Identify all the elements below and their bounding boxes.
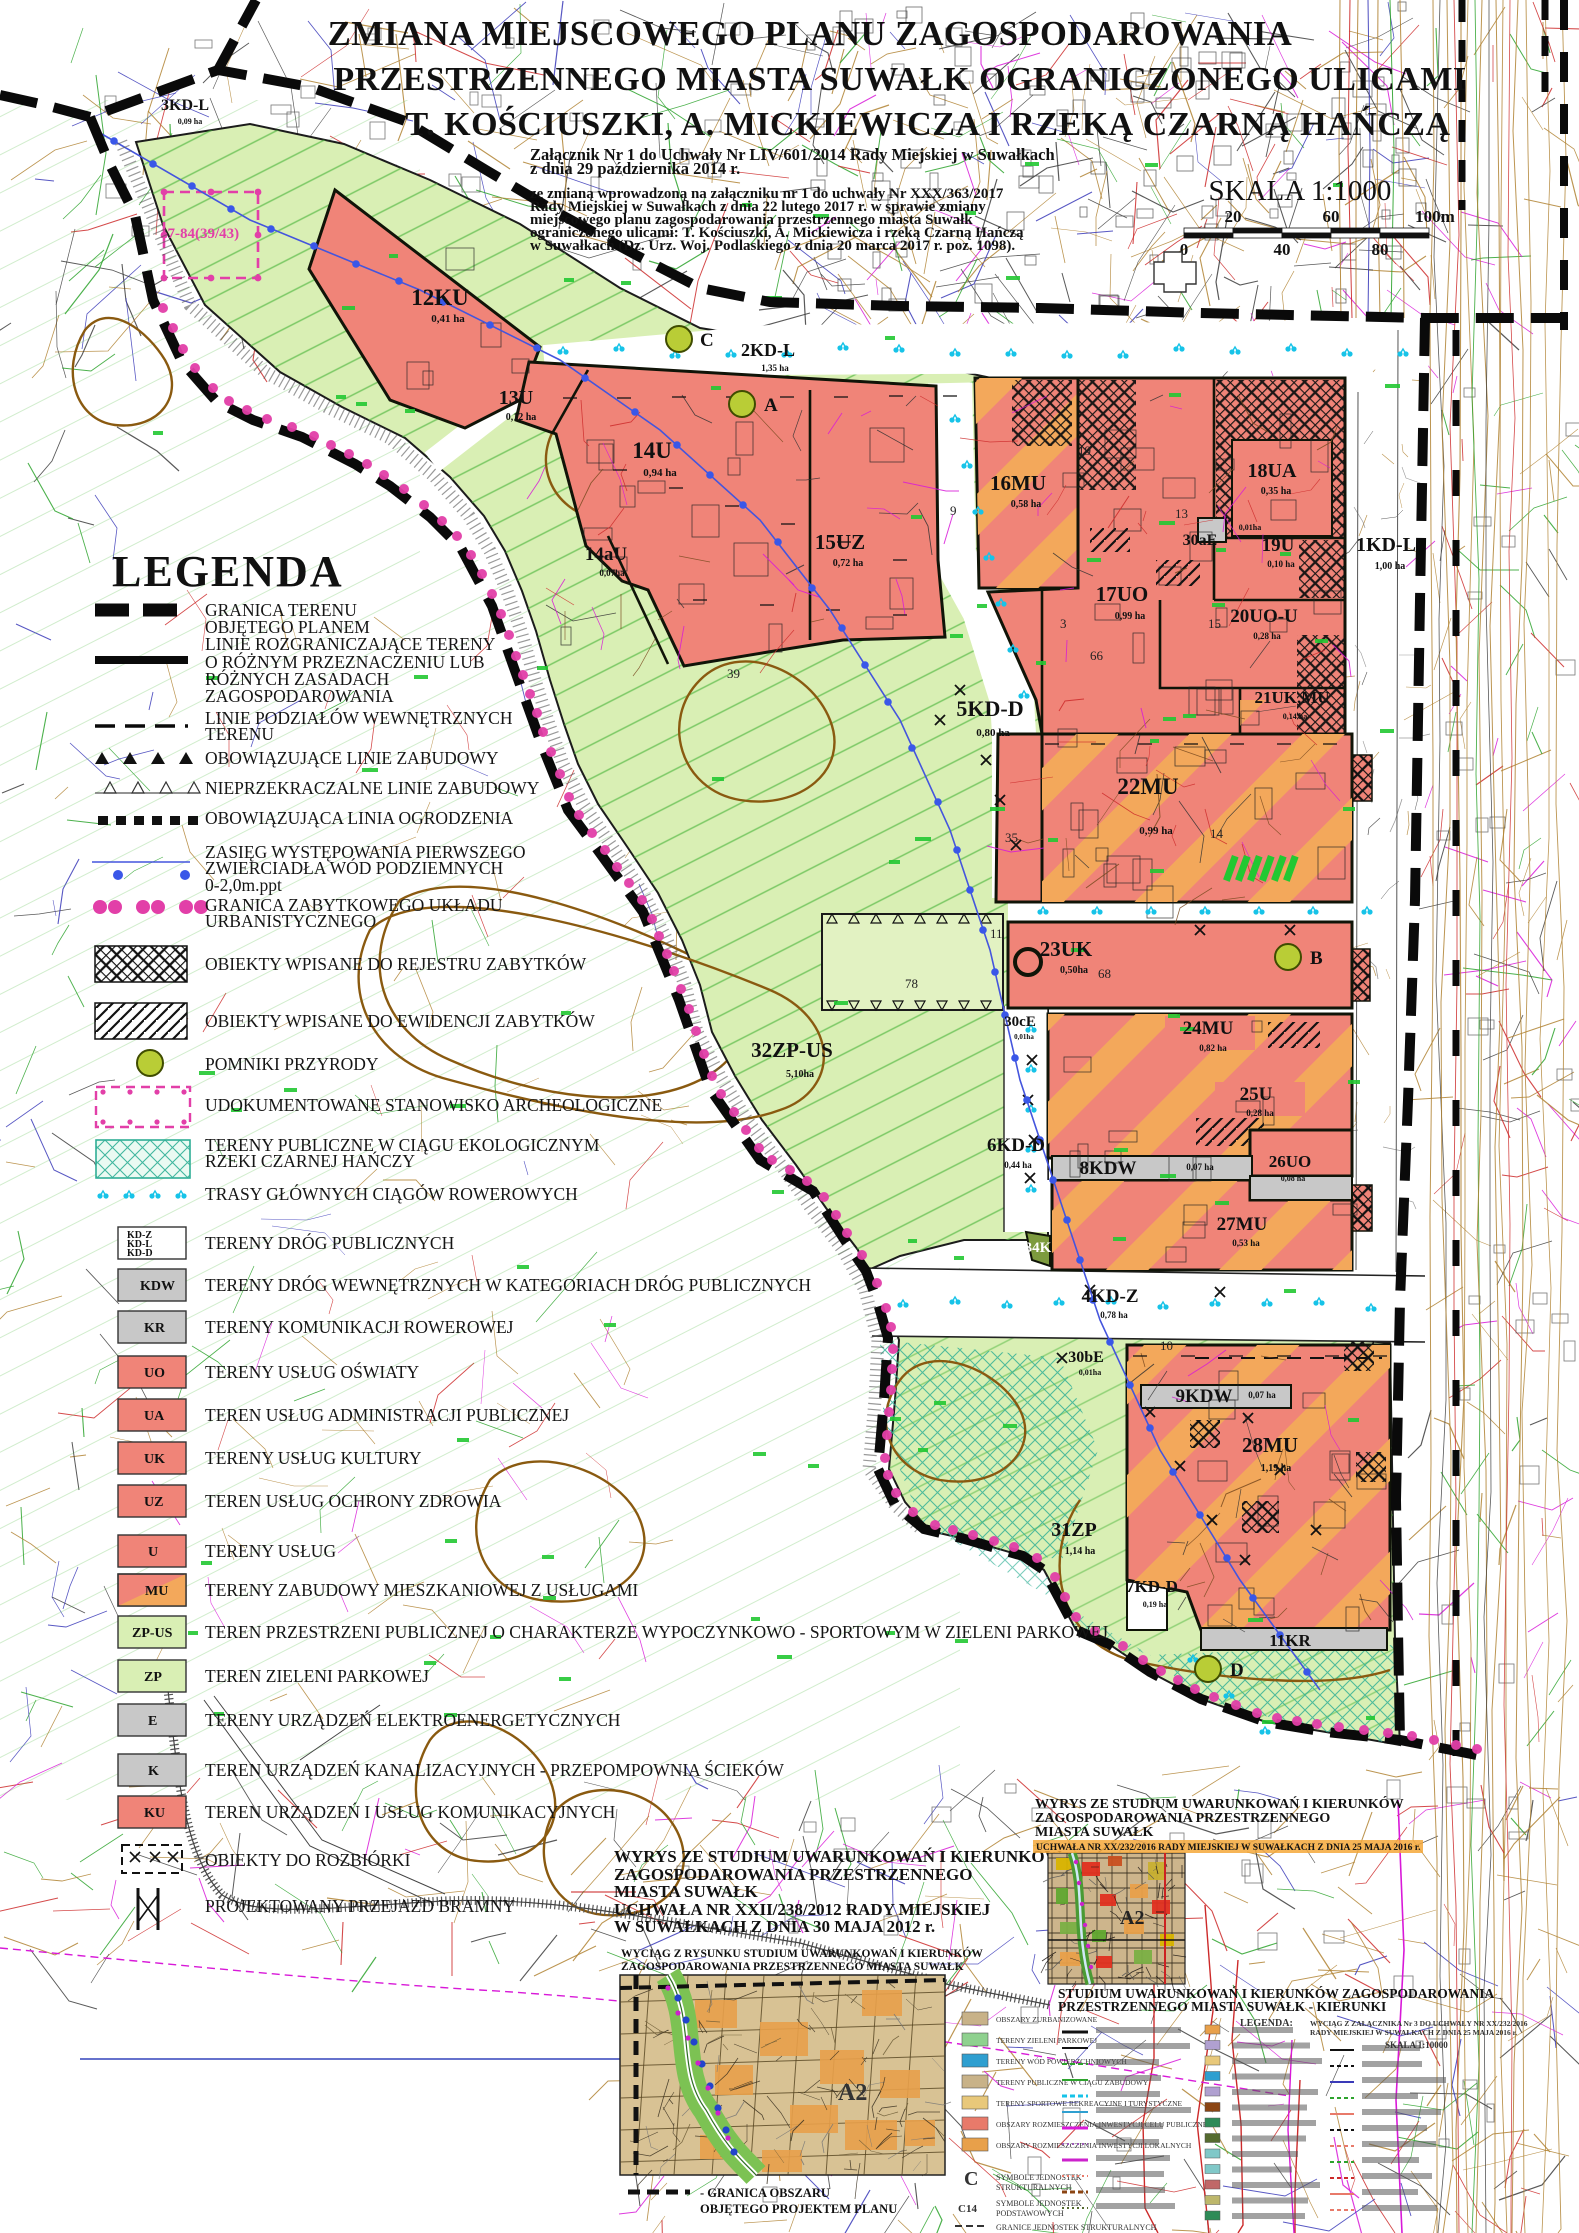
svg-text:40: 40 — [1274, 240, 1291, 259]
svg-text:13U: 13U — [499, 387, 533, 409]
svg-text:STRUKTURALNYCH: STRUKTURALNYCH — [996, 2183, 1072, 2192]
svg-text:A2: A2 — [1120, 1907, 1144, 1929]
svg-text:SKALA 1:1000: SKALA 1:1000 — [1209, 175, 1392, 207]
svg-text:UDOKUMENTOWANE STANOWISKO ARCH: UDOKUMENTOWANE STANOWISKO ARCHEOLOGICZNE — [205, 1095, 662, 1115]
svg-text:15: 15 — [1208, 616, 1221, 631]
svg-text:TERENY SPORTOWE REKREACYJNE I: TERENY SPORTOWE REKREACYJNE I TURYSTYCZN… — [996, 2099, 1183, 2108]
svg-text:0,09 ha: 0,09 ha — [178, 117, 202, 126]
svg-text:SKALA 1:10000: SKALA 1:10000 — [1385, 2040, 1448, 2050]
svg-text:KD-D: KD-D — [127, 1248, 153, 1259]
svg-text:1,19 ha: 1,19 ha — [1261, 1463, 1292, 1474]
svg-text:OBOWIĄZUJĄCA LINIA OGRODZENIA: OBOWIĄZUJĄCA LINIA OGRODZENIA — [205, 808, 514, 828]
svg-text:15UZ: 15UZ — [815, 530, 865, 554]
svg-text:0,41 ha: 0,41 ha — [431, 313, 465, 325]
svg-text:LEGENDA: LEGENDA — [112, 547, 344, 596]
svg-text:TEREN PRZESTRZENI PUBLICZNEJ O: TEREN PRZESTRZENI PUBLICZNEJ O CHARAKTER… — [205, 1622, 1108, 1642]
svg-text:TEREN USŁUG ADMINISTRACJI PUBL: TEREN USŁUG ADMINISTRACJI PUBLICZNEJ — [205, 1405, 569, 1425]
svg-text:1,00 ha: 1,00 ha — [1375, 561, 1406, 572]
svg-text:TEREN USŁUG OCHRONY ZDROWIA: TEREN USŁUG OCHRONY ZDROWIA — [205, 1491, 502, 1511]
svg-text:0,82 ha: 0,82 ha — [1199, 1043, 1227, 1053]
svg-text:11KR: 11KR — [1269, 1631, 1311, 1650]
svg-text:31ZP: 31ZP — [1051, 1519, 1097, 1541]
svg-text:19U: 19U — [1262, 535, 1295, 556]
svg-text:KR: KR — [144, 1321, 166, 1336]
svg-text:0,07 ha: 0,07 ha — [1186, 1162, 1214, 1172]
svg-text:ZMIANA MIEJSCOWEGO PLANU ZAGOS: ZMIANA MIEJSCOWEGO PLANU ZAGOSPODAROWANI… — [328, 15, 1293, 53]
svg-text:13: 13 — [1175, 506, 1188, 521]
svg-text:0,08 ha: 0,08 ha — [1281, 1174, 1305, 1183]
svg-text:POMNIKI PRZYRODY: POMNIKI PRZYRODY — [205, 1054, 379, 1074]
svg-text:GRANICE JEDNOSTEK STRUKTURALNY: GRANICE JEDNOSTEK STRUKTURALNYCH — [996, 2223, 1157, 2232]
svg-text:9: 9 — [950, 503, 957, 518]
svg-text:PROJEKTOWANY PRZEJAZD BRAMNY: PROJEKTOWANY PRZEJAZD BRAMNY — [205, 1896, 516, 1916]
svg-text:30aE: 30aE — [1183, 532, 1218, 549]
svg-text:0,72 ha: 0,72 ha — [833, 558, 864, 569]
svg-text:T. KOŚCIUSZKI, A. MICKIEWICZA: T. KOŚCIUSZKI, A. MICKIEWICZA I RZEKĄ CZ… — [405, 105, 1450, 143]
svg-text:26UO: 26UO — [1269, 1152, 1312, 1171]
svg-text:0,07 ha: 0,07 ha — [1248, 1390, 1276, 1400]
svg-text:1,35 ha: 1,35 ha — [761, 363, 789, 373]
svg-text:TERENY DRÓG WEWNĘTRZNYCH W KAT: TERENY DRÓG WEWNĘTRZNYCH W KATEGORIACH D… — [205, 1275, 811, 1295]
svg-text:TERENY URZĄDZEŃ ELEKTROENERGET: TERENY URZĄDZEŃ ELEKTROENERGETYCZNYCH — [205, 1710, 621, 1730]
svg-text:60: 60 — [1323, 207, 1340, 226]
svg-text:WYRYS ZE STUDIUM UWARUNKOWAŃ I: WYRYS ZE STUDIUM UWARUNKOWAŃ I KIERUNKÓW — [1035, 1795, 1404, 1812]
svg-text:6KD-D: 6KD-D — [987, 1135, 1045, 1156]
svg-text:PRZESTRZENNEGO MIASTA SUWAŁK -: PRZESTRZENNEGO MIASTA SUWAŁK - KIERUNKI — [1058, 1999, 1386, 2014]
svg-text:68: 68 — [1098, 966, 1111, 981]
svg-text:35: 35 — [1005, 830, 1018, 845]
svg-text:0,10 ha: 0,10 ha — [1267, 559, 1295, 569]
svg-text:ZP: ZP — [144, 1670, 162, 1685]
svg-text:0,50ha: 0,50ha — [1060, 965, 1088, 976]
svg-text:5,10ha: 5,10ha — [786, 1069, 814, 1080]
svg-text:RZEKI CZARNEJ HAŃCZY: RZEKI CZARNEJ HAŃCZY — [205, 1151, 415, 1171]
svg-text:C: C — [964, 2168, 978, 2190]
svg-text:12KU: 12KU — [411, 285, 469, 310]
svg-text:80: 80 — [1372, 240, 1389, 259]
svg-text:W SUWAŁKACH Z DNIA 30 MAJA 201: W SUWAŁKACH Z DNIA 30 MAJA 2012 r. — [614, 1917, 935, 1936]
svg-text:66: 66 — [1090, 648, 1104, 663]
svg-text:3: 3 — [1060, 616, 1067, 631]
svg-text:39: 39 — [727, 666, 740, 681]
svg-text:1,14 ha: 1,14 ha — [1065, 1546, 1096, 1557]
svg-text:B: B — [1310, 948, 1323, 969]
svg-text:25U: 25U — [1240, 1084, 1273, 1105]
svg-text:14: 14 — [1210, 826, 1224, 841]
svg-text:0,99 ha: 0,99 ha — [1139, 825, 1173, 837]
svg-text:20: 20 — [1225, 207, 1242, 226]
svg-text:KU: KU — [144, 1806, 165, 1821]
svg-text:PODSTAWOWYCH: PODSTAWOWYCH — [996, 2209, 1064, 2218]
svg-text:TERENY USŁUG: TERENY USŁUG — [205, 1541, 336, 1561]
svg-text:TERENY USŁUG OŚWIATY: TERENY USŁUG OŚWIATY — [205, 1362, 420, 1382]
svg-text:A2: A2 — [838, 2080, 867, 2106]
svg-text:U: U — [148, 1545, 158, 1560]
svg-text:8KDW: 8KDW — [1080, 1158, 1137, 1179]
svg-text:RADY MIEJSKIEJ W SUWAŁKACH Z D: RADY MIEJSKIEJ W SUWAŁKACH Z DNIA 25 MAJ… — [1310, 2028, 1517, 2037]
svg-text:19: 19 — [1078, 443, 1091, 458]
svg-text:14aU: 14aU — [585, 544, 628, 565]
svg-text:20UO-U: 20UO-U — [1230, 606, 1298, 627]
svg-text:2KD-L: 2KD-L — [741, 340, 795, 360]
svg-text:SYMBOLE JEDNOSTEK: SYMBOLE JEDNOSTEK — [996, 2199, 1082, 2208]
svg-text:TEREN ZIELENI PARKOWEJ: TEREN ZIELENI PARKOWEJ — [205, 1666, 429, 1686]
svg-text:OBIEKTY WPISANE DO REJESTRU ZA: OBIEKTY WPISANE DO REJESTRU ZABYTKÓW — [205, 954, 587, 974]
svg-text:UCHWAŁA NR XX/232/2016 RADY MI: UCHWAŁA NR XX/232/2016 RADY MIEJSKIEJ W … — [1036, 1843, 1421, 1853]
svg-text:MIASTA SUWAŁK: MIASTA SUWAŁK — [1035, 1825, 1153, 1840]
svg-text:30cE: 30cE — [1004, 1014, 1036, 1030]
svg-text:0,14 ha: 0,14 ha — [1283, 712, 1307, 721]
svg-text:4KD-Z: 4KD-Z — [1082, 1286, 1139, 1307]
svg-text:0,07ha: 0,07ha — [599, 568, 625, 578]
svg-text:TERENY ZIELENI PARKOWEJ: TERENY ZIELENI PARKOWEJ — [996, 2036, 1097, 2045]
svg-text:SYMBOLE JEDNOSTEK: SYMBOLE JEDNOSTEK — [996, 2173, 1082, 2182]
svg-text:KDW: KDW — [140, 1279, 175, 1294]
svg-text:OBSZARY ROZMIESZCZENIA INWESTY: OBSZARY ROZMIESZCZENIA INWESTYCJI LOKALN… — [996, 2141, 1192, 2150]
svg-text:w Suwałkach (Dz. Urz. Woj. Pod: w Suwałkach (Dz. Urz. Woj. Podlaskiego z… — [530, 238, 1015, 254]
svg-text:UO: UO — [144, 1366, 165, 1381]
svg-text:0,99 ha: 0,99 ha — [1115, 611, 1146, 622]
svg-text:UA: UA — [144, 1409, 165, 1424]
svg-text:23UK: 23UK — [1040, 937, 1093, 961]
svg-text:K: K — [148, 1764, 159, 1779]
svg-text:7KD-D: 7KD-D — [1126, 1577, 1178, 1596]
svg-text:0-2,0m.ppt: 0-2,0m.ppt — [205, 875, 282, 895]
svg-text:E: E — [148, 1714, 157, 1729]
svg-text:0,44 ha: 0,44 ha — [1004, 1160, 1032, 1170]
svg-text:0,28 ha: 0,28 ha — [1246, 1108, 1274, 1118]
svg-text:0,94 ha: 0,94 ha — [643, 467, 677, 479]
svg-text:0,01ha: 0,01ha — [1239, 523, 1261, 532]
svg-text:27MU: 27MU — [1217, 1214, 1268, 1235]
svg-text:17-84(39/43): 17-84(39/43) — [160, 226, 239, 242]
svg-text:LEGENDA:: LEGENDA: — [1240, 2018, 1293, 2029]
svg-text:D: D — [1230, 1660, 1244, 1681]
svg-text:MIASTA SUWAŁK: MIASTA SUWAŁK — [614, 1882, 759, 1901]
svg-text:78: 78 — [905, 976, 918, 991]
svg-text:C14: C14 — [958, 2203, 977, 2215]
svg-text:WYCIĄG Z ZAŁĄCZNIKA Nr 3 DO UC: WYCIĄG Z ZAŁĄCZNIKA Nr 3 DO UCHWAŁY NR X… — [1310, 2019, 1528, 2028]
svg-text:WYRYS ZE STUDIUM UWARUNKOWAŃ I: WYRYS ZE STUDIUM UWARUNKOWAŃ I KIERUNKÓW — [614, 1847, 1062, 1866]
svg-text:OBSZARY ZURBANIZOWANE: OBSZARY ZURBANIZOWANE — [996, 2015, 1098, 2024]
svg-text:TERENY KOMUNIKACJI ROWEROWEJ: TERENY KOMUNIKACJI ROWEROWEJ — [205, 1317, 514, 1337]
svg-text:0,01ha: 0,01ha — [1014, 1033, 1034, 1041]
svg-text:OBJĘTEGO PROJEKTEM PLANU: OBJĘTEGO PROJEKTEM PLANU — [700, 2202, 897, 2216]
svg-text:OBIEKTY DO ROZBIÓRKI: OBIEKTY DO ROZBIÓRKI — [205, 1850, 411, 1870]
svg-text:ZAGOSPODAROWANIA: ZAGOSPODAROWANIA — [205, 686, 394, 706]
svg-text:3KD-L: 3KD-L — [161, 97, 209, 114]
svg-text:ZAGOSPODAROWANIA PRZESTRZENNEG: ZAGOSPODAROWANIA PRZESTRZENNEGO — [1035, 1811, 1330, 1826]
svg-text:TEREN URZĄDZEŃ KANALIZACYJNYCH: TEREN URZĄDZEŃ KANALIZACYJNYCH - PRZEPOM… — [205, 1760, 784, 1780]
svg-text:14U: 14U — [632, 438, 672, 463]
svg-text:1KD-L: 1KD-L — [1356, 534, 1416, 556]
svg-text:TERENY ZABUDOWY MIESZKANIOWEJ: TERENY ZABUDOWY MIESZKANIOWEJ Z USŁUGAMI — [205, 1580, 638, 1600]
svg-text:0,58 ha: 0,58 ha — [1011, 499, 1042, 510]
svg-text:OBIEKTY WPISANE DO EWIDENCJI Z: OBIEKTY WPISANE DO EWIDENCJI ZABYTKÓW — [205, 1011, 595, 1031]
svg-text:16MU: 16MU — [990, 471, 1046, 495]
svg-text:0,19 ha: 0,19 ha — [1143, 1600, 1167, 1609]
svg-text:0,12 ha: 0,12 ha — [506, 412, 537, 423]
svg-text:TERENY DRÓG PUBLICZNYCH: TERENY DRÓG PUBLICZNYCH — [205, 1233, 455, 1253]
svg-text:32ZP-US: 32ZP-US — [751, 1038, 833, 1062]
svg-text:PRZESTRZENNEGO MIASTA SUWAŁK O: PRZESTRZENNEGO MIASTA SUWAŁK OGRANICZONE… — [333, 61, 1466, 98]
svg-text:C: C — [700, 330, 714, 351]
svg-text:9KDW: 9KDW — [1176, 1386, 1233, 1407]
svg-text:URBANISTYCZNEGO: URBANISTYCZNEGO — [205, 911, 376, 931]
svg-text:28MU: 28MU — [1242, 1433, 1298, 1457]
svg-text:24MU: 24MU — [1183, 1018, 1234, 1039]
svg-text:10: 10 — [1160, 1338, 1173, 1353]
svg-text:- GRANICA OBSZARU: - GRANICA OBSZARU — [700, 2186, 830, 2200]
svg-text:22MU: 22MU — [1117, 774, 1179, 799]
svg-text:TERENY USŁUG KULTURY: TERENY USŁUG KULTURY — [205, 1448, 422, 1468]
svg-text:0,35 ha: 0,35 ha — [1261, 486, 1292, 497]
svg-text:ZP-US: ZP-US — [132, 1626, 173, 1641]
svg-text:WYCIĄG Z RYSUNKU STUDIUM UWARU: WYCIĄG Z RYSUNKU STUDIUM UWARUNKOWAŃ I K… — [621, 1946, 983, 1960]
svg-text:MU: MU — [145, 1584, 168, 1599]
svg-text:100m: 100m — [1415, 207, 1455, 226]
svg-text:NIEPRZEKRACZALNE LINIE ZABUDOW: NIEPRZEKRACZALNE LINIE ZABUDOWY — [205, 778, 540, 798]
svg-text:TERENU: TERENU — [205, 724, 274, 744]
svg-text:OBOWIĄZUJĄCE LINIE ZABUDOWY: OBOWIĄZUJĄCE LINIE ZABUDOWY — [205, 748, 499, 768]
svg-text:z dnia 29 października 2014 r.: z dnia 29 października 2014 r. — [530, 159, 740, 178]
svg-text:UK: UK — [144, 1452, 165, 1467]
svg-text:UZ: UZ — [144, 1495, 163, 1510]
svg-text:A: A — [764, 395, 778, 416]
svg-text:LINIE ROZGRANICZAJĄCE TERENY: LINIE ROZGRANICZAJĄCE TERENY — [205, 634, 496, 654]
svg-text:TEREN URZĄDZEŃ I USŁUG KOMUNIK: TEREN URZĄDZEŃ I USŁUG KOMUNIKACYJNYCH — [205, 1802, 616, 1822]
svg-text:5KD-D: 5KD-D — [956, 696, 1023, 721]
svg-text:0,80 ha: 0,80 ha — [976, 727, 1010, 739]
svg-text:30bE: 30bE — [1068, 1349, 1104, 1366]
svg-text:11: 11 — [990, 926, 1003, 941]
svg-text:0,28 ha: 0,28 ha — [1253, 631, 1281, 641]
svg-text:TRASY GŁÓWNYCH CIĄGÓW ROWEROWY: TRASY GŁÓWNYCH CIĄGÓW ROWEROWYCH — [205, 1184, 578, 1204]
svg-text:0,53 ha: 0,53 ha — [1232, 1238, 1260, 1248]
svg-text:0,78 ha: 0,78 ha — [1100, 1310, 1128, 1320]
svg-text:18UA: 18UA — [1248, 460, 1297, 482]
svg-text:ZAGOSPODAROWANIA PRZESTRZENNEG: ZAGOSPODAROWANIA PRZESTRZENNEGO MIASTA S… — [621, 1961, 964, 1973]
svg-text:0,01ha: 0,01ha — [1079, 1368, 1101, 1377]
svg-text:34K: 34K — [1025, 1240, 1052, 1256]
svg-text:17UO: 17UO — [1096, 582, 1149, 606]
svg-text:21UK,MU: 21UK,MU — [1254, 688, 1329, 707]
